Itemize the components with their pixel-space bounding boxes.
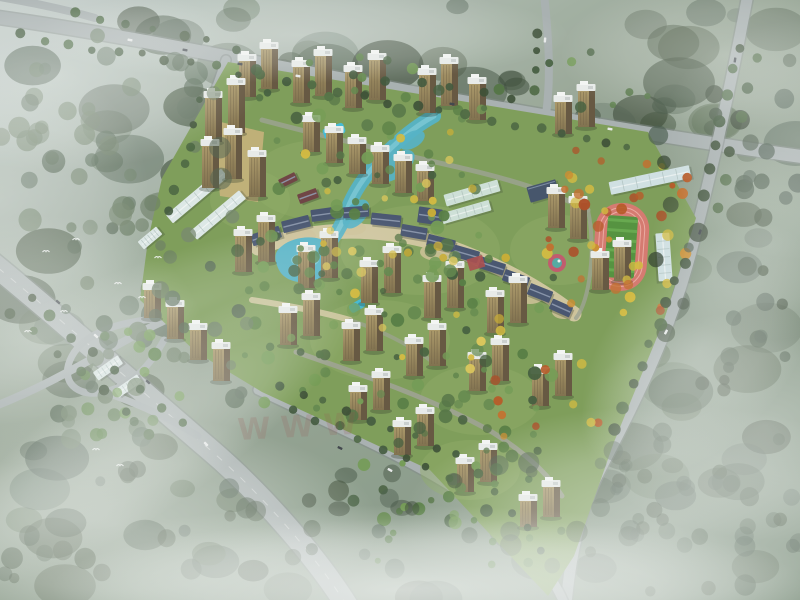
rendering-canvas: WWW [0,0,800,600]
aerial-masterplan-rendering: WWW [0,0,800,600]
watermark-text: WWW [237,406,368,448]
fog-mist-layer [0,0,800,600]
